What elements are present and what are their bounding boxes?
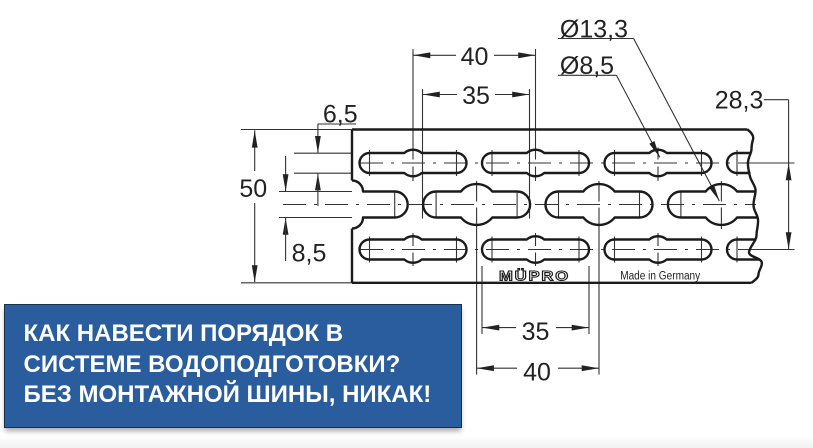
svg-text:28,3: 28,3 <box>715 87 764 115</box>
svg-text:6,5: 6,5 <box>323 100 358 128</box>
svg-text:35: 35 <box>462 82 490 110</box>
svg-text:40: 40 <box>523 359 551 387</box>
svg-text:Ø13,3: Ø13,3 <box>560 16 628 44</box>
svg-text:50: 50 <box>239 175 267 203</box>
svg-text:Ø8,5: Ø8,5 <box>560 52 614 80</box>
svg-text:MÜPRO: MÜPRO <box>499 268 570 284</box>
svg-text:Made in Germany: Made in Germany <box>620 271 700 283</box>
svg-text:35: 35 <box>522 318 550 346</box>
svg-text:8,5: 8,5 <box>292 239 327 267</box>
svg-text:40: 40 <box>461 43 489 71</box>
